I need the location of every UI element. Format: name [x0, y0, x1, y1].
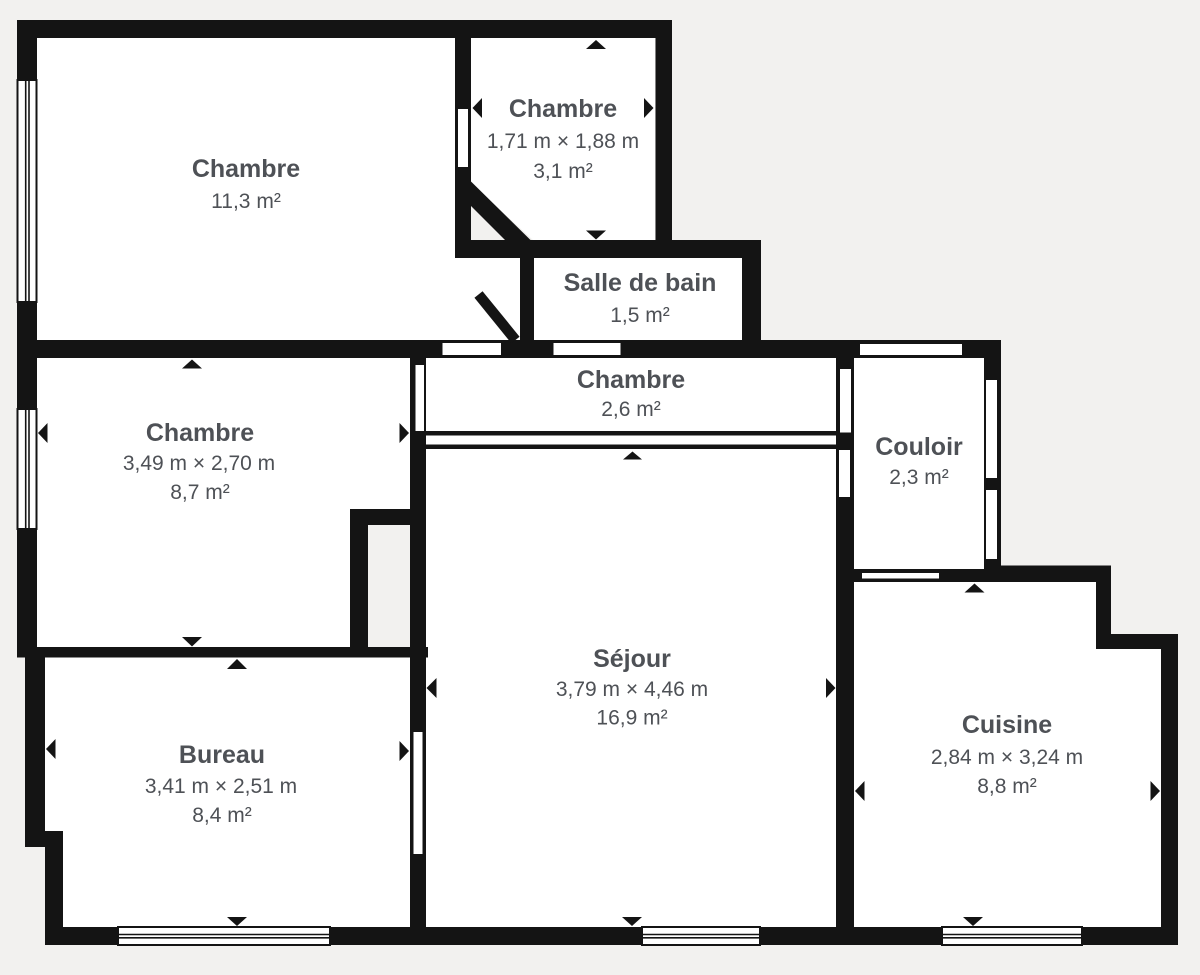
svg-text:Chambre: Chambre [577, 366, 685, 394]
svg-text:2,84 m × 3,24 m: 2,84 m × 3,24 m [931, 746, 1083, 769]
svg-text:1,5 m²: 1,5 m² [610, 304, 670, 327]
svg-text:8,4 m²: 8,4 m² [192, 804, 252, 827]
svg-text:Séjour: Séjour [593, 645, 671, 673]
svg-text:Bureau: Bureau [179, 741, 265, 769]
svg-text:Chambre: Chambre [192, 155, 300, 183]
svg-text:Couloir: Couloir [875, 433, 963, 461]
svg-text:3,49 m × 2,70 m: 3,49 m × 2,70 m [123, 452, 275, 475]
svg-text:Chambre: Chambre [509, 95, 617, 123]
svg-text:2,3 m²: 2,3 m² [889, 466, 949, 489]
svg-text:Cuisine: Cuisine [962, 711, 1052, 739]
svg-text:1,71 m × 1,88 m: 1,71 m × 1,88 m [487, 130, 639, 153]
svg-text:8,8 m²: 8,8 m² [977, 775, 1037, 798]
svg-text:11,3 m²: 11,3 m² [211, 190, 281, 213]
svg-text:2,6 m²: 2,6 m² [601, 398, 661, 421]
svg-text:Chambre: Chambre [146, 419, 254, 447]
svg-text:3,79 m × 4,46 m: 3,79 m × 4,46 m [556, 678, 708, 701]
svg-text:Salle de bain: Salle de bain [564, 269, 717, 297]
svg-text:3,41 m × 2,51 m: 3,41 m × 2,51 m [145, 775, 297, 798]
svg-text:3,1 m²: 3,1 m² [533, 160, 593, 183]
svg-text:16,9 m²: 16,9 m² [596, 707, 667, 730]
svg-text:8,7 m²: 8,7 m² [170, 481, 230, 504]
